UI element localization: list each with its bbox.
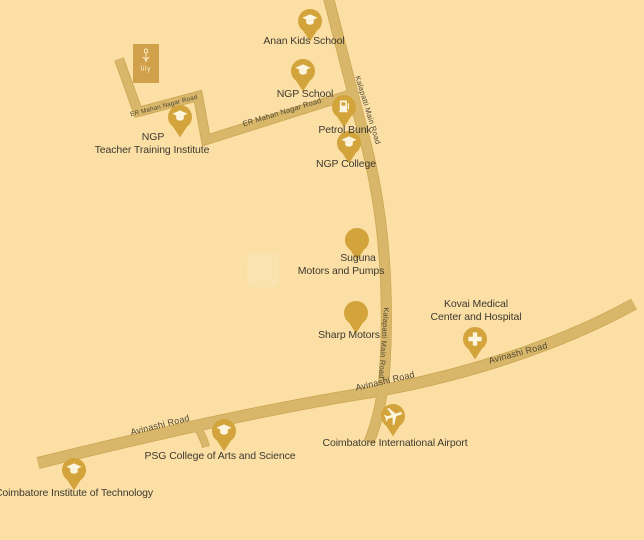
map-pin-ngp-teacher-training-institute[interactable] [167,104,193,138]
map-pin-coimbatore-institute-of-technology[interactable] [61,457,87,491]
lily-logo-badge: lily [133,44,159,83]
map-pin-kovai-medical-center[interactable] [462,326,488,360]
place-label-ngp-school: NGP School [277,88,334,100]
place-label-cit: Coimbatore Institute of Technology [0,487,153,499]
place-label-suguna-line1: Suguna [340,252,376,264]
place-label-petrol-bunk: Petrol Bunk [318,124,371,136]
map-pin-petrol-bunk[interactable] [331,94,357,128]
place-label-ngp-tti-line2: Teacher Training Institute [95,144,210,156]
place-label-anan-kids-school: Anan Kids School [263,35,344,47]
map-pin-ngp-school[interactable] [290,58,316,92]
place-label-psg-college: PSG College of Arts and Science [145,450,296,462]
place-label-kovai-line2: Center and Hospital [431,311,522,323]
watermark-icon [247,253,279,287]
tulip-flower-icon [133,44,159,68]
place-label-sharp-motors: Sharp Motors [318,329,380,341]
place-label-kovai-line1: Kovai Medical [444,298,508,310]
map-pin-coimbatore-international-airport[interactable] [380,403,406,437]
place-label-ngp-tti-line1: NGP [142,131,164,143]
lily-logo-text: lily [141,66,152,74]
place-label-ngp-college: NGP College [316,158,376,170]
location-map-canvas[interactable]: ER Mahan Nagar Road ER Mahan Nagar Road … [0,0,644,540]
map-pin-psg-college[interactable] [211,418,237,452]
place-label-airport: Coimbatore International Airport [322,437,467,449]
place-label-suguna-line2: Motors and Pumps [298,265,385,277]
